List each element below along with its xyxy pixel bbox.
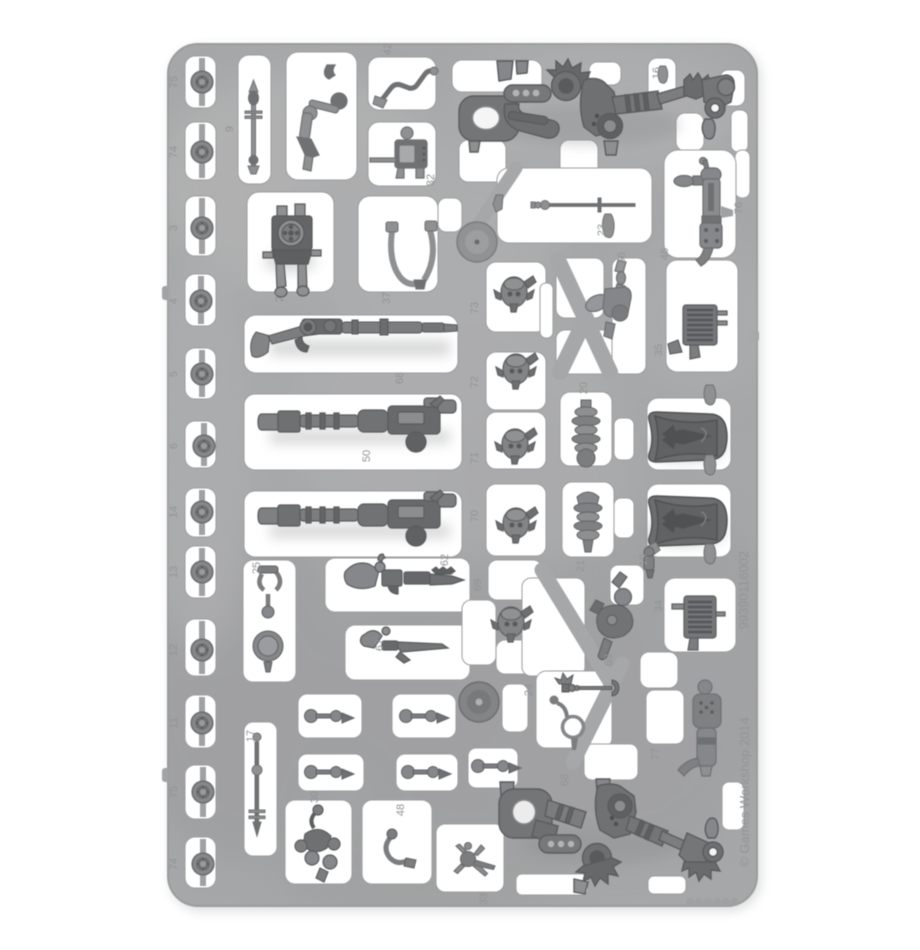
svg-text:14: 14 [168, 506, 180, 518]
svg-text:24: 24 [523, 684, 535, 696]
svg-text:21: 21 [575, 560, 587, 572]
svg-text:62: 62 [439, 554, 451, 566]
svg-text:32: 32 [425, 174, 437, 186]
svg-text:73: 73 [469, 302, 481, 314]
svg-text:76: 76 [733, 202, 745, 214]
svg-text:5: 5 [168, 371, 180, 377]
svg-text:66: 66 [616, 252, 628, 264]
svg-text:70: 70 [469, 510, 481, 522]
svg-text:48: 48 [395, 804, 407, 816]
svg-text:23: 23 [596, 224, 608, 236]
svg-text:11: 11 [168, 717, 180, 728]
svg-text:69: 69 [472, 579, 484, 591]
svg-text:25: 25 [251, 562, 263, 574]
svg-text:6: 6 [168, 443, 180, 449]
svg-text:75: 75 [168, 786, 180, 798]
svg-text:© Games Workshop 2014: © Games Workshop 2014 [737, 717, 752, 867]
svg-text:12: 12 [168, 644, 180, 656]
svg-text:67: 67 [374, 639, 386, 651]
svg-text:4: 4 [168, 298, 180, 304]
svg-text:42: 42 [382, 43, 394, 55]
svg-text:72: 72 [469, 376, 481, 388]
svg-text:34: 34 [653, 600, 665, 612]
svg-text:50: 50 [361, 450, 373, 462]
svg-text:30: 30 [309, 791, 321, 803]
svg-text:46: 46 [659, 248, 671, 260]
svg-text:35: 35 [653, 344, 665, 356]
svg-text:75: 75 [168, 76, 180, 88]
svg-text:71: 71 [469, 452, 481, 464]
svg-text:77: 77 [650, 748, 662, 760]
svg-text:3: 3 [168, 225, 180, 231]
svg-text:9: 9 [224, 126, 236, 132]
svg-text:17: 17 [245, 730, 257, 742]
svg-text:13: 13 [168, 566, 180, 578]
svg-text:68: 68 [394, 372, 406, 384]
svg-text:33: 33 [478, 893, 490, 905]
svg-text:20: 20 [578, 382, 590, 394]
svg-text:22: 22 [274, 290, 286, 302]
svg-text:16: 16 [651, 67, 663, 79]
svg-text:74: 74 [168, 146, 180, 158]
svg-text:37: 37 [381, 292, 393, 304]
svg-text:19: 19 [638, 554, 650, 566]
svg-text:68: 68 [559, 774, 571, 786]
svg-text:99390116002: 99390116002 [736, 551, 751, 630]
svg-text:63: 63 [603, 654, 615, 666]
svg-text:74: 74 [168, 858, 180, 870]
